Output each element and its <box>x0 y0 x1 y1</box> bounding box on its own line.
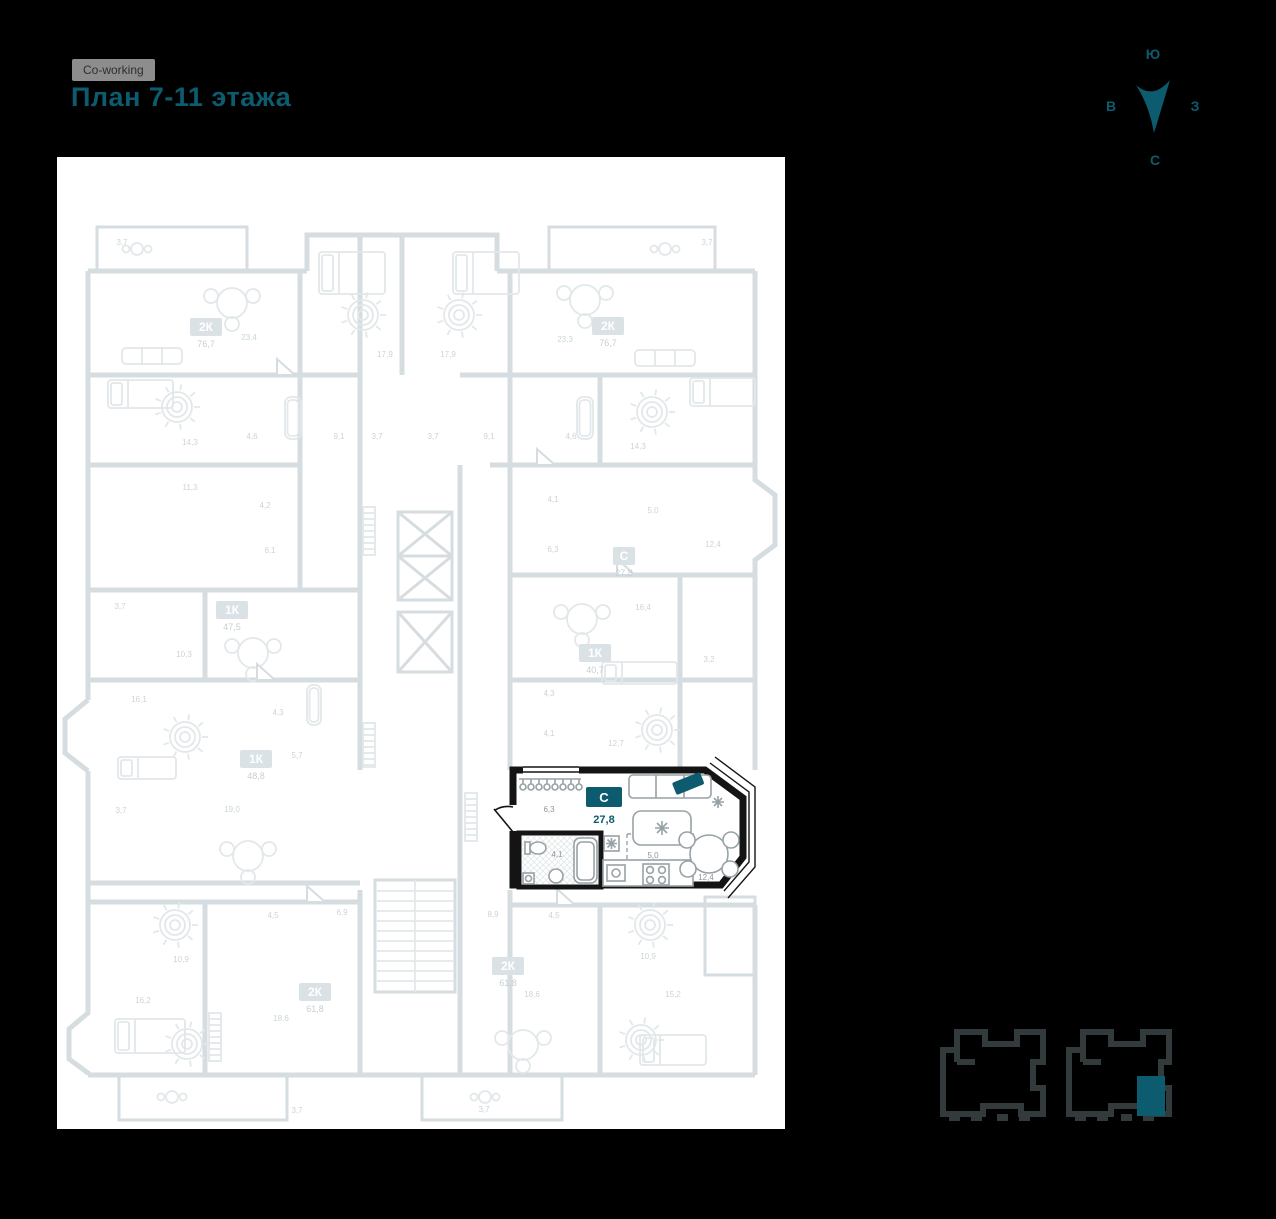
unit-badge[interactable]: С27,8 <box>613 547 635 578</box>
bathtub <box>307 685 321 725</box>
round-table <box>225 638 281 681</box>
plant-icon <box>655 821 669 835</box>
unit-area-value: 47,5 <box>223 622 241 632</box>
room-area-label: 4,5 <box>267 911 279 920</box>
wardrobe <box>209 1013 221 1061</box>
room-area-label: 3,7 <box>116 238 128 247</box>
unit-area-value: 27,8 <box>593 814 614 826</box>
radiator-swirl <box>628 902 673 947</box>
radiator-swirl <box>437 292 482 337</box>
balcony-table <box>158 1091 187 1103</box>
unit-area-value: 40,7 <box>586 665 604 675</box>
balcony-table <box>471 1091 500 1103</box>
bed <box>118 757 176 779</box>
floor-plan-canvas: 3,73,723,423,317,917,914,34,69,13,73,79,… <box>57 157 785 1129</box>
room-area-label: 6,9 <box>336 908 348 917</box>
bathroom <box>519 833 601 887</box>
unit-area-value: 61,8 <box>306 1004 324 1014</box>
unit-type-label: 1К <box>249 752 264 766</box>
unit-area-value: 76,7 <box>599 338 617 348</box>
sink <box>549 869 563 883</box>
room-area-label: 17,9 <box>440 350 456 359</box>
bathtub <box>577 397 593 439</box>
unit-badge[interactable]: 2К76,7 <box>592 317 624 348</box>
unit-area-value: 48,8 <box>247 771 265 781</box>
radiator-swirl <box>619 1017 664 1062</box>
room-area-label: 23,3 <box>557 335 573 344</box>
room-area-label: 18,6 <box>524 990 540 999</box>
compass-west-label: З <box>1185 98 1205 114</box>
radiator-swirl <box>163 714 208 759</box>
room-area-label: 14,3 <box>182 438 198 447</box>
room-area-label: 3,7 <box>371 432 383 441</box>
room-area-label: 12,4 <box>705 540 721 549</box>
compass-south-label: Ю <box>1143 46 1163 62</box>
room-area-label: 18,6 <box>273 1014 289 1023</box>
bathtub <box>285 397 301 439</box>
room-area-label: 15,2 <box>665 990 681 999</box>
room-area-label: 3,7 <box>427 432 439 441</box>
room-area-label: 16,4 <box>635 603 651 612</box>
wardrobe <box>465 793 477 841</box>
unit-type-label: 2К <box>199 320 214 334</box>
bed <box>690 378 755 406</box>
unit-type-label: С <box>599 790 609 805</box>
room-area-label: 11,3 <box>183 483 199 492</box>
room-area-label: 4,5 <box>548 911 560 920</box>
room-area-label: 4,6 <box>246 432 258 441</box>
washer <box>523 873 534 884</box>
unit-type-label: С <box>620 549 629 563</box>
room-area-label: 4,3 <box>272 708 284 717</box>
current-section-highlight[interactable] <box>1137 1076 1165 1116</box>
compass: Ю В З С <box>1093 46 1213 172</box>
sofa <box>635 350 695 366</box>
room-area-label: 23,4 <box>241 333 257 342</box>
unit-type-label: 1К <box>225 603 240 617</box>
door-swing <box>537 449 555 465</box>
room-area-label: 3,2 <box>703 655 715 664</box>
room-area-label: 16,1 <box>131 695 147 704</box>
unit-type-label: 2К <box>601 319 616 333</box>
room-area-label: 4,1 <box>551 850 563 859</box>
room-area-label: 9,1 <box>483 432 495 441</box>
sofa <box>122 348 182 364</box>
bed <box>640 1035 706 1065</box>
room-area-label: 5,7 <box>291 751 303 760</box>
room-area-label: 17,9 <box>377 350 393 359</box>
room-area-label: 5,0 <box>647 506 659 515</box>
room-area-label: 19,0 <box>224 805 240 814</box>
bed <box>319 252 385 294</box>
radiator-swirl <box>635 707 680 752</box>
unit-badge[interactable]: 2К61,8 <box>492 957 524 988</box>
room-area-label: 4,6 <box>565 432 577 441</box>
page-title: План 7-11 этажа <box>71 82 291 113</box>
unit-badge[interactable]: 1К48,8 <box>240 750 272 781</box>
room-area-label: 10,3 <box>176 650 192 659</box>
room-area-label: 4,1 <box>547 495 559 504</box>
unit-badge[interactable]: 1К47,5 <box>216 601 248 632</box>
compass-north-label: С <box>1145 152 1165 168</box>
room-area-label: 3,7 <box>114 602 126 611</box>
room-area-label: 9,1 <box>333 432 345 441</box>
unit-area-value: 76,7 <box>197 339 215 349</box>
room-area-label: 12,4 <box>698 873 714 882</box>
door-swing <box>257 664 275 680</box>
compass-east-label: В <box>1101 98 1121 114</box>
unit-badge[interactable]: 1К40,7 <box>579 644 611 675</box>
room-area-label: 4,2 <box>259 501 271 510</box>
room-area-label: 3,7 <box>478 1105 490 1114</box>
unit-badge[interactable]: 2К76,7 <box>190 318 222 349</box>
room-area-label: 4,3 <box>543 689 555 698</box>
wardrobe <box>363 723 375 767</box>
room-area-label: 14,3 <box>630 442 646 451</box>
room-area-label: 8,9 <box>487 910 499 919</box>
room-area-label: 16,2 <box>135 996 151 1005</box>
door-swing <box>307 886 325 902</box>
radiator-swirl <box>153 902 198 947</box>
room-area-label: 10,9 <box>173 955 189 964</box>
compass-needle-icon <box>1132 72 1174 138</box>
project-badge: Co-working <box>72 59 155 81</box>
wardrobe <box>363 507 375 555</box>
unit-type-label: 1К <box>588 646 603 660</box>
room-area-label: 3,7 <box>115 806 127 815</box>
door-swing <box>557 889 575 905</box>
unit-type-label: 2К <box>501 959 516 973</box>
room-area-label: 6,3 <box>543 805 555 814</box>
unit-area-value: 61,8 <box>499 978 517 988</box>
room-area-label: 5,0 <box>647 851 659 860</box>
selected-unit[interactable]: 6,34,15,012,4 С 27,8 <box>494 757 755 898</box>
round-table <box>220 841 276 884</box>
room-area-label: 6,3 <box>547 545 559 554</box>
balcony-table <box>651 243 680 255</box>
room-area-label: 6,1 <box>264 546 276 555</box>
faded-plan-walls <box>65 227 775 1120</box>
room-area-label: 4,1 <box>543 729 555 738</box>
unit-badge[interactable]: 2К61,8 <box>299 983 331 1014</box>
radiator-swirl <box>155 384 200 429</box>
room-area-label: 3,7 <box>291 1106 303 1115</box>
room-area-label: 12,7 <box>608 739 624 748</box>
unit-type-label: 2К <box>308 985 323 999</box>
radiator-swirl <box>341 292 386 337</box>
site-plan-thumbnail[interactable] <box>935 1018 1191 1140</box>
round-table <box>554 604 610 647</box>
unit-area-value: 27,8 <box>615 568 633 578</box>
room-area-label: 10,9 <box>640 952 656 961</box>
door-swing <box>277 359 295 375</box>
round-table <box>495 1030 551 1073</box>
radiator-swirl <box>630 389 675 434</box>
room-area-label: 3,7 <box>701 238 713 247</box>
building-block-outline <box>943 1032 1043 1121</box>
